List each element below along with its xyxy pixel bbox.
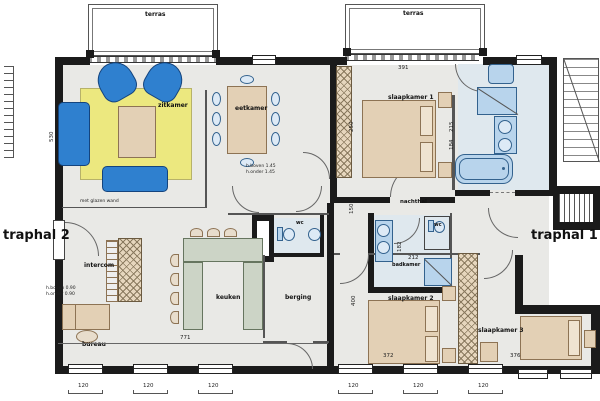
height-note: h.boven 1.45 xyxy=(246,164,276,169)
wall xyxy=(515,255,523,310)
wall xyxy=(455,190,490,196)
nightstand xyxy=(438,92,452,108)
dimension: 120 xyxy=(143,384,154,390)
nightstand xyxy=(442,348,456,363)
closet xyxy=(118,238,142,302)
wc-label: wc xyxy=(434,223,442,228)
height-note: h.boven 0.90 xyxy=(46,286,76,291)
window xyxy=(518,369,548,379)
dimension: 372 xyxy=(383,354,394,360)
dimension-line xyxy=(58,343,328,344)
kitchen-counter xyxy=(243,262,263,330)
wall xyxy=(86,50,94,58)
wall xyxy=(333,197,390,203)
window xyxy=(133,364,168,374)
bedroom2-label: slaapkamer 2 xyxy=(388,296,434,302)
dimension: 120 xyxy=(413,384,424,390)
window xyxy=(68,364,103,374)
window xyxy=(516,55,542,65)
dimension-line xyxy=(468,390,503,394)
pillow xyxy=(420,106,433,136)
wall xyxy=(270,215,274,257)
sink xyxy=(498,138,512,152)
nightstand xyxy=(442,286,456,301)
terrace-right-label: terras xyxy=(403,11,423,17)
dimension: 182 xyxy=(398,242,404,253)
chair xyxy=(271,132,280,146)
livingroom-label: zitkamer xyxy=(158,103,188,109)
dimension-line xyxy=(198,390,233,394)
wall xyxy=(212,50,220,58)
window xyxy=(198,364,233,374)
dimension: 120 xyxy=(78,384,89,390)
bar-stool xyxy=(170,292,179,305)
dimension: 530 xyxy=(50,132,56,143)
dimension: 215 xyxy=(450,122,456,133)
window xyxy=(252,55,276,65)
height-note: h.onder 1.45 xyxy=(246,170,275,175)
washbasin xyxy=(488,64,514,84)
toilet xyxy=(283,228,295,241)
terrace-left-label: terras xyxy=(145,12,165,18)
intercom-label: intercom xyxy=(84,263,114,269)
chair xyxy=(212,112,221,126)
dimension-line xyxy=(68,390,103,394)
diningroom-label: eetkamer xyxy=(235,106,267,112)
glass-wall-note: met glazen wand xyxy=(80,199,119,204)
sofa xyxy=(102,166,168,192)
pillow xyxy=(425,306,438,332)
dimension: 120 xyxy=(208,384,219,390)
chair xyxy=(271,92,280,106)
bedroom3-label: slaapkamer 3 xyxy=(478,328,524,334)
wall xyxy=(515,305,600,314)
partition xyxy=(263,255,265,338)
dimension-line xyxy=(338,390,373,394)
bar-stool xyxy=(224,228,237,237)
pillow xyxy=(425,336,438,362)
wc-label: wc xyxy=(296,221,304,226)
bar-stool xyxy=(190,228,203,237)
wall xyxy=(479,48,487,56)
wall xyxy=(549,57,557,190)
wardrobe xyxy=(458,253,478,364)
entry-threshold-right xyxy=(490,192,515,193)
partition xyxy=(228,213,329,215)
chair xyxy=(271,112,280,126)
window xyxy=(560,369,592,379)
kitchen-counter xyxy=(183,262,203,330)
floor-plan: terras terras xyxy=(0,0,600,401)
bar-stool xyxy=(170,273,179,286)
elevator-car xyxy=(559,194,593,222)
dimension-line xyxy=(133,390,168,394)
sliding-door-left xyxy=(88,56,216,63)
chair xyxy=(480,342,498,362)
kitchen-label: keuken xyxy=(216,295,240,301)
dimension-line xyxy=(403,390,438,394)
bar-stool xyxy=(170,254,179,267)
sliding-door-right xyxy=(345,54,479,61)
dining-table xyxy=(227,86,267,154)
sink xyxy=(377,224,390,237)
window xyxy=(468,364,503,374)
pillow xyxy=(568,320,580,356)
dimension: 184 xyxy=(450,140,456,151)
wall xyxy=(216,57,347,65)
wall xyxy=(515,190,557,196)
bathtub-drain xyxy=(502,167,505,170)
nightstand xyxy=(438,162,452,178)
dimension: 250 xyxy=(350,122,356,133)
nighthall-label: nachthal xyxy=(400,200,427,206)
stairhall1-label: traphal 1 xyxy=(531,228,598,243)
dimension: 212 xyxy=(408,256,419,262)
chair xyxy=(240,75,254,84)
stair-ruler xyxy=(4,66,14,158)
window xyxy=(338,364,373,374)
bar-stool xyxy=(170,311,179,324)
wall xyxy=(270,253,324,257)
dimension: 120 xyxy=(348,384,359,390)
chair xyxy=(212,92,221,106)
coffee-table xyxy=(118,106,156,158)
wall xyxy=(343,48,351,56)
bathroom2-label: badkamer xyxy=(392,263,420,268)
dimension: 771 xyxy=(180,336,191,342)
desk-pedestal xyxy=(62,304,76,330)
sink xyxy=(498,120,512,134)
partition xyxy=(205,90,207,207)
height-note: h.onder 0.90 xyxy=(46,292,75,297)
dimension: 376 xyxy=(510,354,521,360)
kitchen-counter xyxy=(183,238,263,262)
storage-label: berging xyxy=(285,295,311,301)
glass-wall-line xyxy=(62,207,207,208)
nightstand xyxy=(584,330,596,348)
pillow xyxy=(420,142,433,172)
window xyxy=(403,364,438,374)
shelving xyxy=(106,240,118,302)
sofa xyxy=(58,102,90,166)
sink xyxy=(308,228,321,241)
dimension: 391 xyxy=(398,66,409,72)
bar-stool xyxy=(207,228,220,237)
dimension: 120 xyxy=(478,384,489,390)
bedroom1-label: slaapkamer 1 xyxy=(388,95,434,101)
dimension: 400 xyxy=(352,296,358,307)
stairhall2-label: traphal 2 xyxy=(3,228,70,243)
chair xyxy=(212,132,221,146)
dimension: 150 xyxy=(350,204,356,215)
sink xyxy=(377,241,390,254)
